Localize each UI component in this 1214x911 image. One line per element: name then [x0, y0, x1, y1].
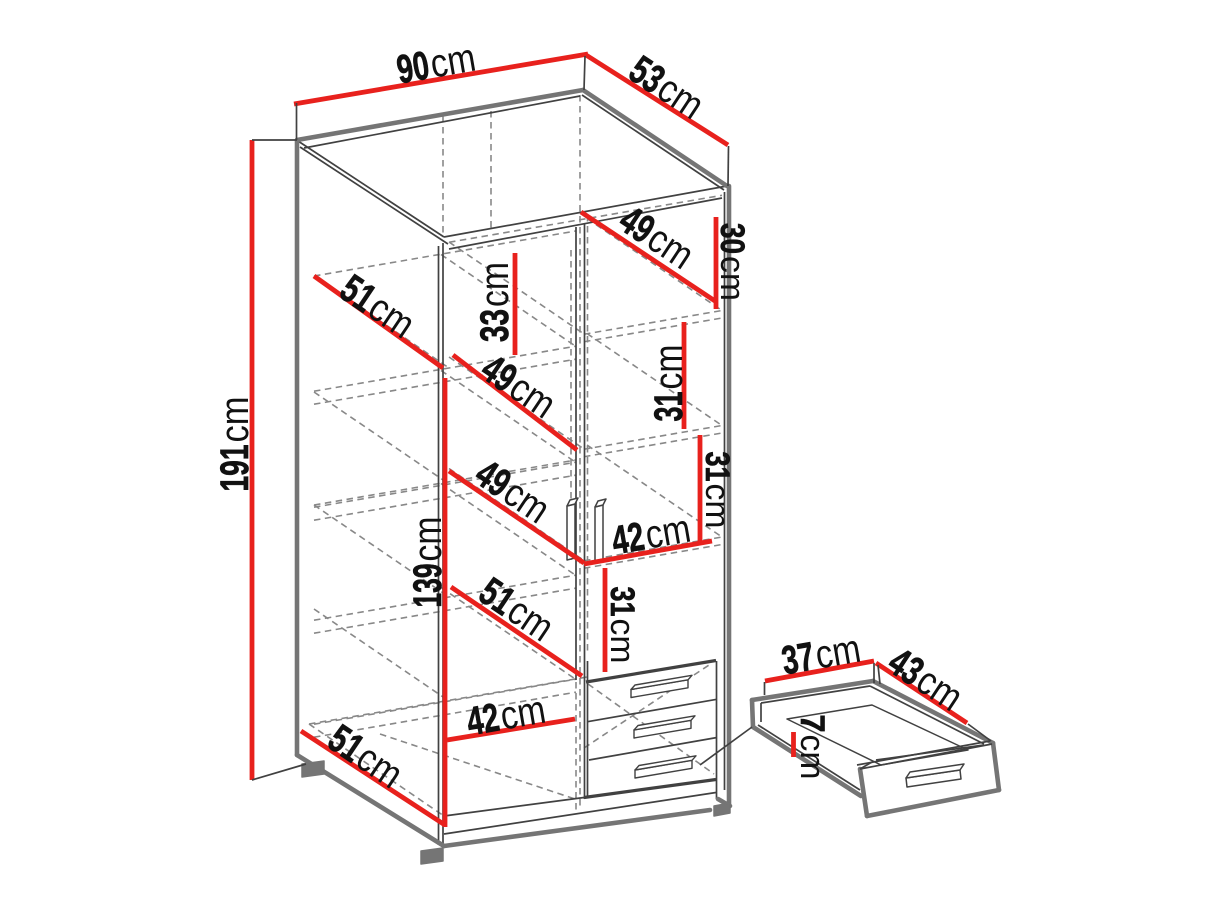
svg-text:cm: cm — [427, 36, 479, 87]
svg-text:cm: cm — [213, 397, 257, 443]
svg-text:cm: cm — [497, 688, 549, 739]
svg-text:33: 33 — [473, 309, 517, 342]
svg-text:31: 31 — [698, 452, 736, 482]
svg-text:31: 31 — [647, 392, 691, 422]
svg-text:cm: cm — [603, 619, 641, 664]
svg-text:139: 139 — [406, 564, 450, 608]
svg-text:cm: cm — [642, 507, 694, 558]
svg-text:30: 30 — [713, 223, 751, 254]
svg-text:cm: cm — [647, 345, 691, 390]
svg-text:cm: cm — [812, 627, 864, 678]
svg-text:cm: cm — [406, 517, 450, 562]
svg-text:7: 7 — [793, 715, 831, 733]
svg-text:cm: cm — [473, 262, 517, 307]
svg-text:cm: cm — [698, 484, 736, 529]
svg-text:cm: cm — [793, 735, 831, 780]
svg-text:31: 31 — [603, 587, 641, 617]
svg-text:cm: cm — [713, 256, 751, 301]
svg-text:191: 191 — [213, 445, 257, 492]
